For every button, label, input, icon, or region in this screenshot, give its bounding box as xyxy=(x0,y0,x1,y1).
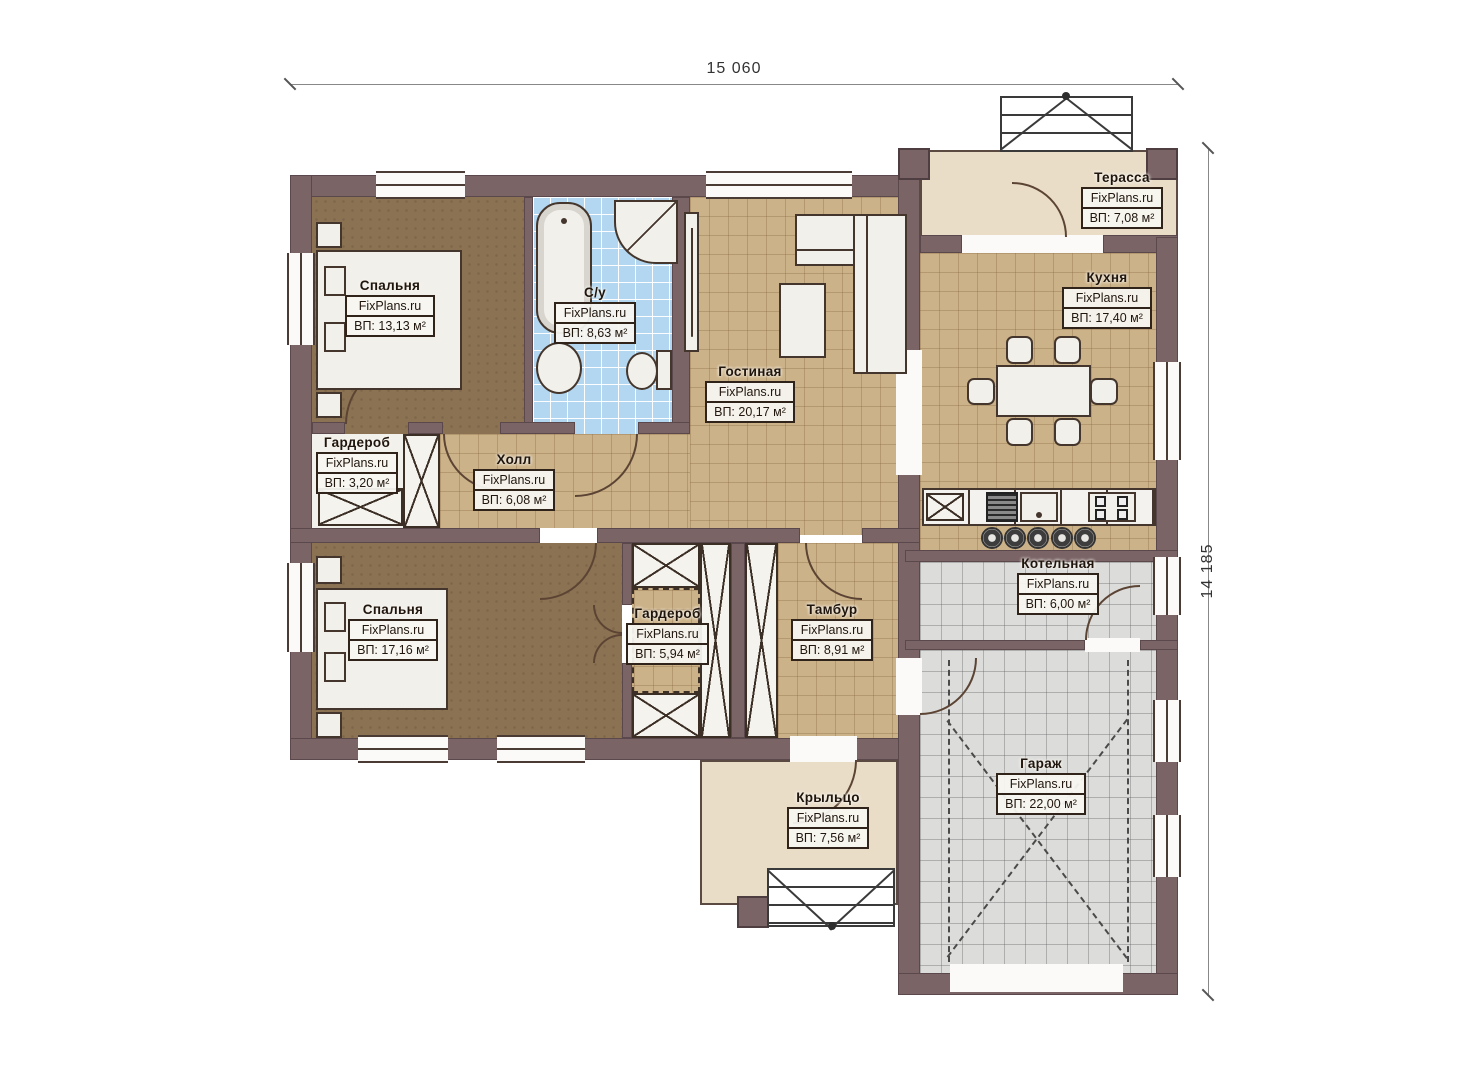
brand-label: FixPlans.ru xyxy=(789,809,868,827)
nightstand xyxy=(316,712,342,738)
stairs-guide xyxy=(1064,96,1132,150)
window xyxy=(1153,815,1181,877)
area-label: ВП: 8,91 м² xyxy=(793,639,872,659)
brand-label: FixPlans.ru xyxy=(475,471,554,489)
dimension-line-top xyxy=(290,84,1178,85)
brand-label: FixPlans.ru xyxy=(793,621,872,639)
room-label-boiler: Котельная FixPlans.ru ВП: 6,00 м² xyxy=(998,556,1118,615)
chair xyxy=(1006,418,1033,446)
label-box: FixPlans.ru ВП: 6,00 м² xyxy=(1017,573,1100,615)
window xyxy=(358,735,448,763)
label-box: FixPlans.ru ВП: 7,08 м² xyxy=(1081,187,1164,229)
stove xyxy=(1088,492,1136,522)
bathtub-drain xyxy=(561,218,567,224)
window xyxy=(1153,700,1181,762)
area-label: ВП: 7,56 м² xyxy=(789,827,868,847)
label-box: FixPlans.ru ВП: 5,94 м² xyxy=(626,623,709,665)
room-label-hall: Холл FixPlans.ru ВП: 6,08 м² xyxy=(454,452,574,511)
brand-label: FixPlans.ru xyxy=(556,304,635,322)
terrace-stairs xyxy=(1000,96,1133,152)
sink xyxy=(536,342,582,394)
entrance-door-opening xyxy=(790,736,857,762)
area-label: ВП: 22,00 м² xyxy=(998,793,1084,813)
bar-stool xyxy=(981,527,1003,549)
chair xyxy=(1006,336,1033,364)
brand-label: FixPlans.ru xyxy=(318,454,397,472)
porch-pillar xyxy=(737,896,769,928)
wall-right-outer xyxy=(1156,237,1178,995)
window xyxy=(287,253,315,345)
chair xyxy=(1054,418,1081,446)
bar-stool xyxy=(1004,527,1026,549)
stairs-guide xyxy=(1001,96,1069,150)
nightstand xyxy=(316,556,342,584)
room-label-terrace: Терасса FixPlans.ru ВП: 7,08 м² xyxy=(1062,170,1182,229)
wall-boiler-garage xyxy=(1140,640,1178,650)
room-name: Тамбур xyxy=(772,602,892,617)
nightstand xyxy=(316,392,342,418)
label-box: FixPlans.ru ВП: 3,20 м² xyxy=(316,452,399,494)
toilet-bowl xyxy=(626,352,658,390)
wall-bedroom1-bath xyxy=(524,197,533,434)
tambour-garage-opening xyxy=(896,658,922,715)
area-label: ВП: 6,08 м² xyxy=(475,489,554,509)
room-label-garage: Гараж FixPlans.ru ВП: 22,00 м² xyxy=(981,756,1101,815)
chair xyxy=(1090,378,1118,405)
stairs-node xyxy=(1062,92,1070,100)
label-box: FixPlans.ru ВП: 17,16 м² xyxy=(348,619,438,661)
room-name: Кухня xyxy=(1047,270,1167,285)
stairs-node xyxy=(828,922,836,930)
label-box: FixPlans.ru ВП: 7,56 м² xyxy=(787,807,870,849)
bar-stool xyxy=(1074,527,1096,549)
stove-burner xyxy=(1095,509,1106,520)
stove-burner xyxy=(1095,496,1106,507)
wall-bedroom2-wardrobe xyxy=(622,543,632,605)
room-name: Терасса xyxy=(1062,170,1182,185)
window xyxy=(706,171,852,199)
chair xyxy=(1054,336,1081,364)
dining-table xyxy=(996,365,1091,417)
wall-boiler-garage xyxy=(905,640,1085,650)
wall-bedroom2-wardrobe xyxy=(622,663,632,738)
window xyxy=(1153,362,1181,460)
brand-label: FixPlans.ru xyxy=(1064,289,1150,307)
label-box: FixPlans.ru ВП: 8,91 м² xyxy=(791,619,874,661)
label-box: FixPlans.ru ВП: 8,63 м² xyxy=(554,302,637,344)
room-name: Спальня xyxy=(333,602,453,617)
room-name: Крыльцо xyxy=(768,790,888,805)
terrace-door-opening xyxy=(962,235,1103,253)
brand-label: FixPlans.ru xyxy=(1083,189,1162,207)
room-name: Гардероб xyxy=(610,606,725,621)
counter-cabinet xyxy=(926,493,964,521)
wall-h1 xyxy=(312,422,345,434)
label-box: FixPlans.ru ВП: 17,40 м² xyxy=(1062,287,1152,329)
kitchen-faucet xyxy=(1036,512,1042,518)
counter-drainboard xyxy=(986,492,1018,522)
porch-steps xyxy=(767,868,895,927)
area-label: ВП: 17,16 м² xyxy=(350,639,436,659)
brand-label: FixPlans.ru xyxy=(350,621,436,639)
room-name: С/у xyxy=(535,285,655,300)
area-label: ВП: 20,17 м² xyxy=(707,401,793,421)
room-label-porch: Крыльцо FixPlans.ru ВП: 7,56 м² xyxy=(768,790,888,849)
room-label-bedroom2: Спальня FixPlans.ru ВП: 17,16 м² xyxy=(333,602,453,661)
room-label-living: Гостиная FixPlans.ru ВП: 20,17 м² xyxy=(690,364,810,423)
label-box: FixPlans.ru ВП: 13,13 м² xyxy=(345,295,435,337)
window xyxy=(1153,557,1181,615)
area-label: ВП: 5,94 м² xyxy=(628,643,707,663)
coffee-table xyxy=(779,283,826,358)
chair xyxy=(967,378,995,405)
label-box: FixPlans.ru ВП: 6,08 м² xyxy=(473,469,556,511)
room-name: Гардероб xyxy=(300,435,414,450)
wall-kitchen-top xyxy=(920,235,962,253)
area-label: ВП: 6,00 м² xyxy=(1019,593,1098,613)
garage-marking xyxy=(948,660,950,962)
area-label: ВП: 17,40 м² xyxy=(1064,307,1150,327)
label-box: FixPlans.ru ВП: 20,17 м² xyxy=(705,381,795,423)
stove-burner xyxy=(1117,496,1128,507)
stove-burner xyxy=(1117,509,1128,520)
room-label-wardrobe2: Гардероб FixPlans.ru ВП: 5,94 м² xyxy=(610,606,725,665)
label-box: FixPlans.ru ВП: 22,00 м² xyxy=(996,773,1086,815)
room-label-bedroom1: Спальня FixPlans.ru ВП: 13,13 м² xyxy=(330,278,450,337)
dimension-height-label: 14 185 xyxy=(1199,506,1217,636)
room-name: Спальня xyxy=(330,278,450,293)
area-label: ВП: 8,63 м² xyxy=(556,322,635,342)
wall-h1 xyxy=(408,422,443,434)
room-label-bathroom: С/у FixPlans.ru ВП: 8,63 м² xyxy=(535,285,655,344)
wall-h1 xyxy=(500,422,575,434)
room-label-tambour: Тамбур FixPlans.ru ВП: 8,91 м² xyxy=(772,602,892,661)
room-name: Гостиная xyxy=(690,364,810,379)
brand-label: FixPlans.ru xyxy=(707,383,793,401)
wall-closet-divider xyxy=(731,543,745,738)
room-label-kitchen: Кухня FixPlans.ru ВП: 17,40 м² xyxy=(1047,270,1167,329)
area-label: ВП: 13,13 м² xyxy=(347,315,433,335)
floor-plan-canvas: 15 060 14 185 xyxy=(0,0,1473,1080)
dimension-width-label: 15 060 xyxy=(290,60,1178,78)
bar-stool xyxy=(1027,527,1049,549)
room-name: Котельная xyxy=(998,556,1118,571)
window xyxy=(376,171,465,199)
wall-h1 xyxy=(638,422,690,434)
sofa-chaise xyxy=(853,214,907,374)
wardrobe2-closet-top xyxy=(632,543,700,588)
brand-label: FixPlans.ru xyxy=(998,775,1084,793)
stairs-guide xyxy=(768,870,833,930)
toilet-tank xyxy=(656,350,672,390)
room-name: Гараж xyxy=(981,756,1101,771)
wall-middle xyxy=(597,528,800,543)
window xyxy=(287,563,315,652)
stairs-guide xyxy=(829,870,894,930)
brand-label: FixPlans.ru xyxy=(1019,575,1098,593)
nightstand xyxy=(316,222,342,248)
bar-stool xyxy=(1051,527,1073,549)
boiler-garage-opening xyxy=(1085,638,1140,652)
terrace-pillar xyxy=(898,148,930,180)
garage-gate xyxy=(950,964,1123,992)
garage-marking xyxy=(1127,660,1129,962)
room-name: Холл xyxy=(454,452,574,467)
wardrobe2-closet-bottom xyxy=(632,693,700,738)
area-label: ВП: 7,08 м² xyxy=(1083,207,1162,227)
room-label-wardrobe1: Гардероб FixPlans.ru ВП: 3,20 м² xyxy=(300,435,414,494)
brand-label: FixPlans.ru xyxy=(628,625,707,643)
area-label: ВП: 3,20 м² xyxy=(318,472,397,492)
brand-label: FixPlans.ru xyxy=(347,297,433,315)
wall-middle xyxy=(862,528,920,543)
tv-stand xyxy=(684,212,699,352)
wall-middle xyxy=(290,528,540,543)
window xyxy=(497,735,585,763)
